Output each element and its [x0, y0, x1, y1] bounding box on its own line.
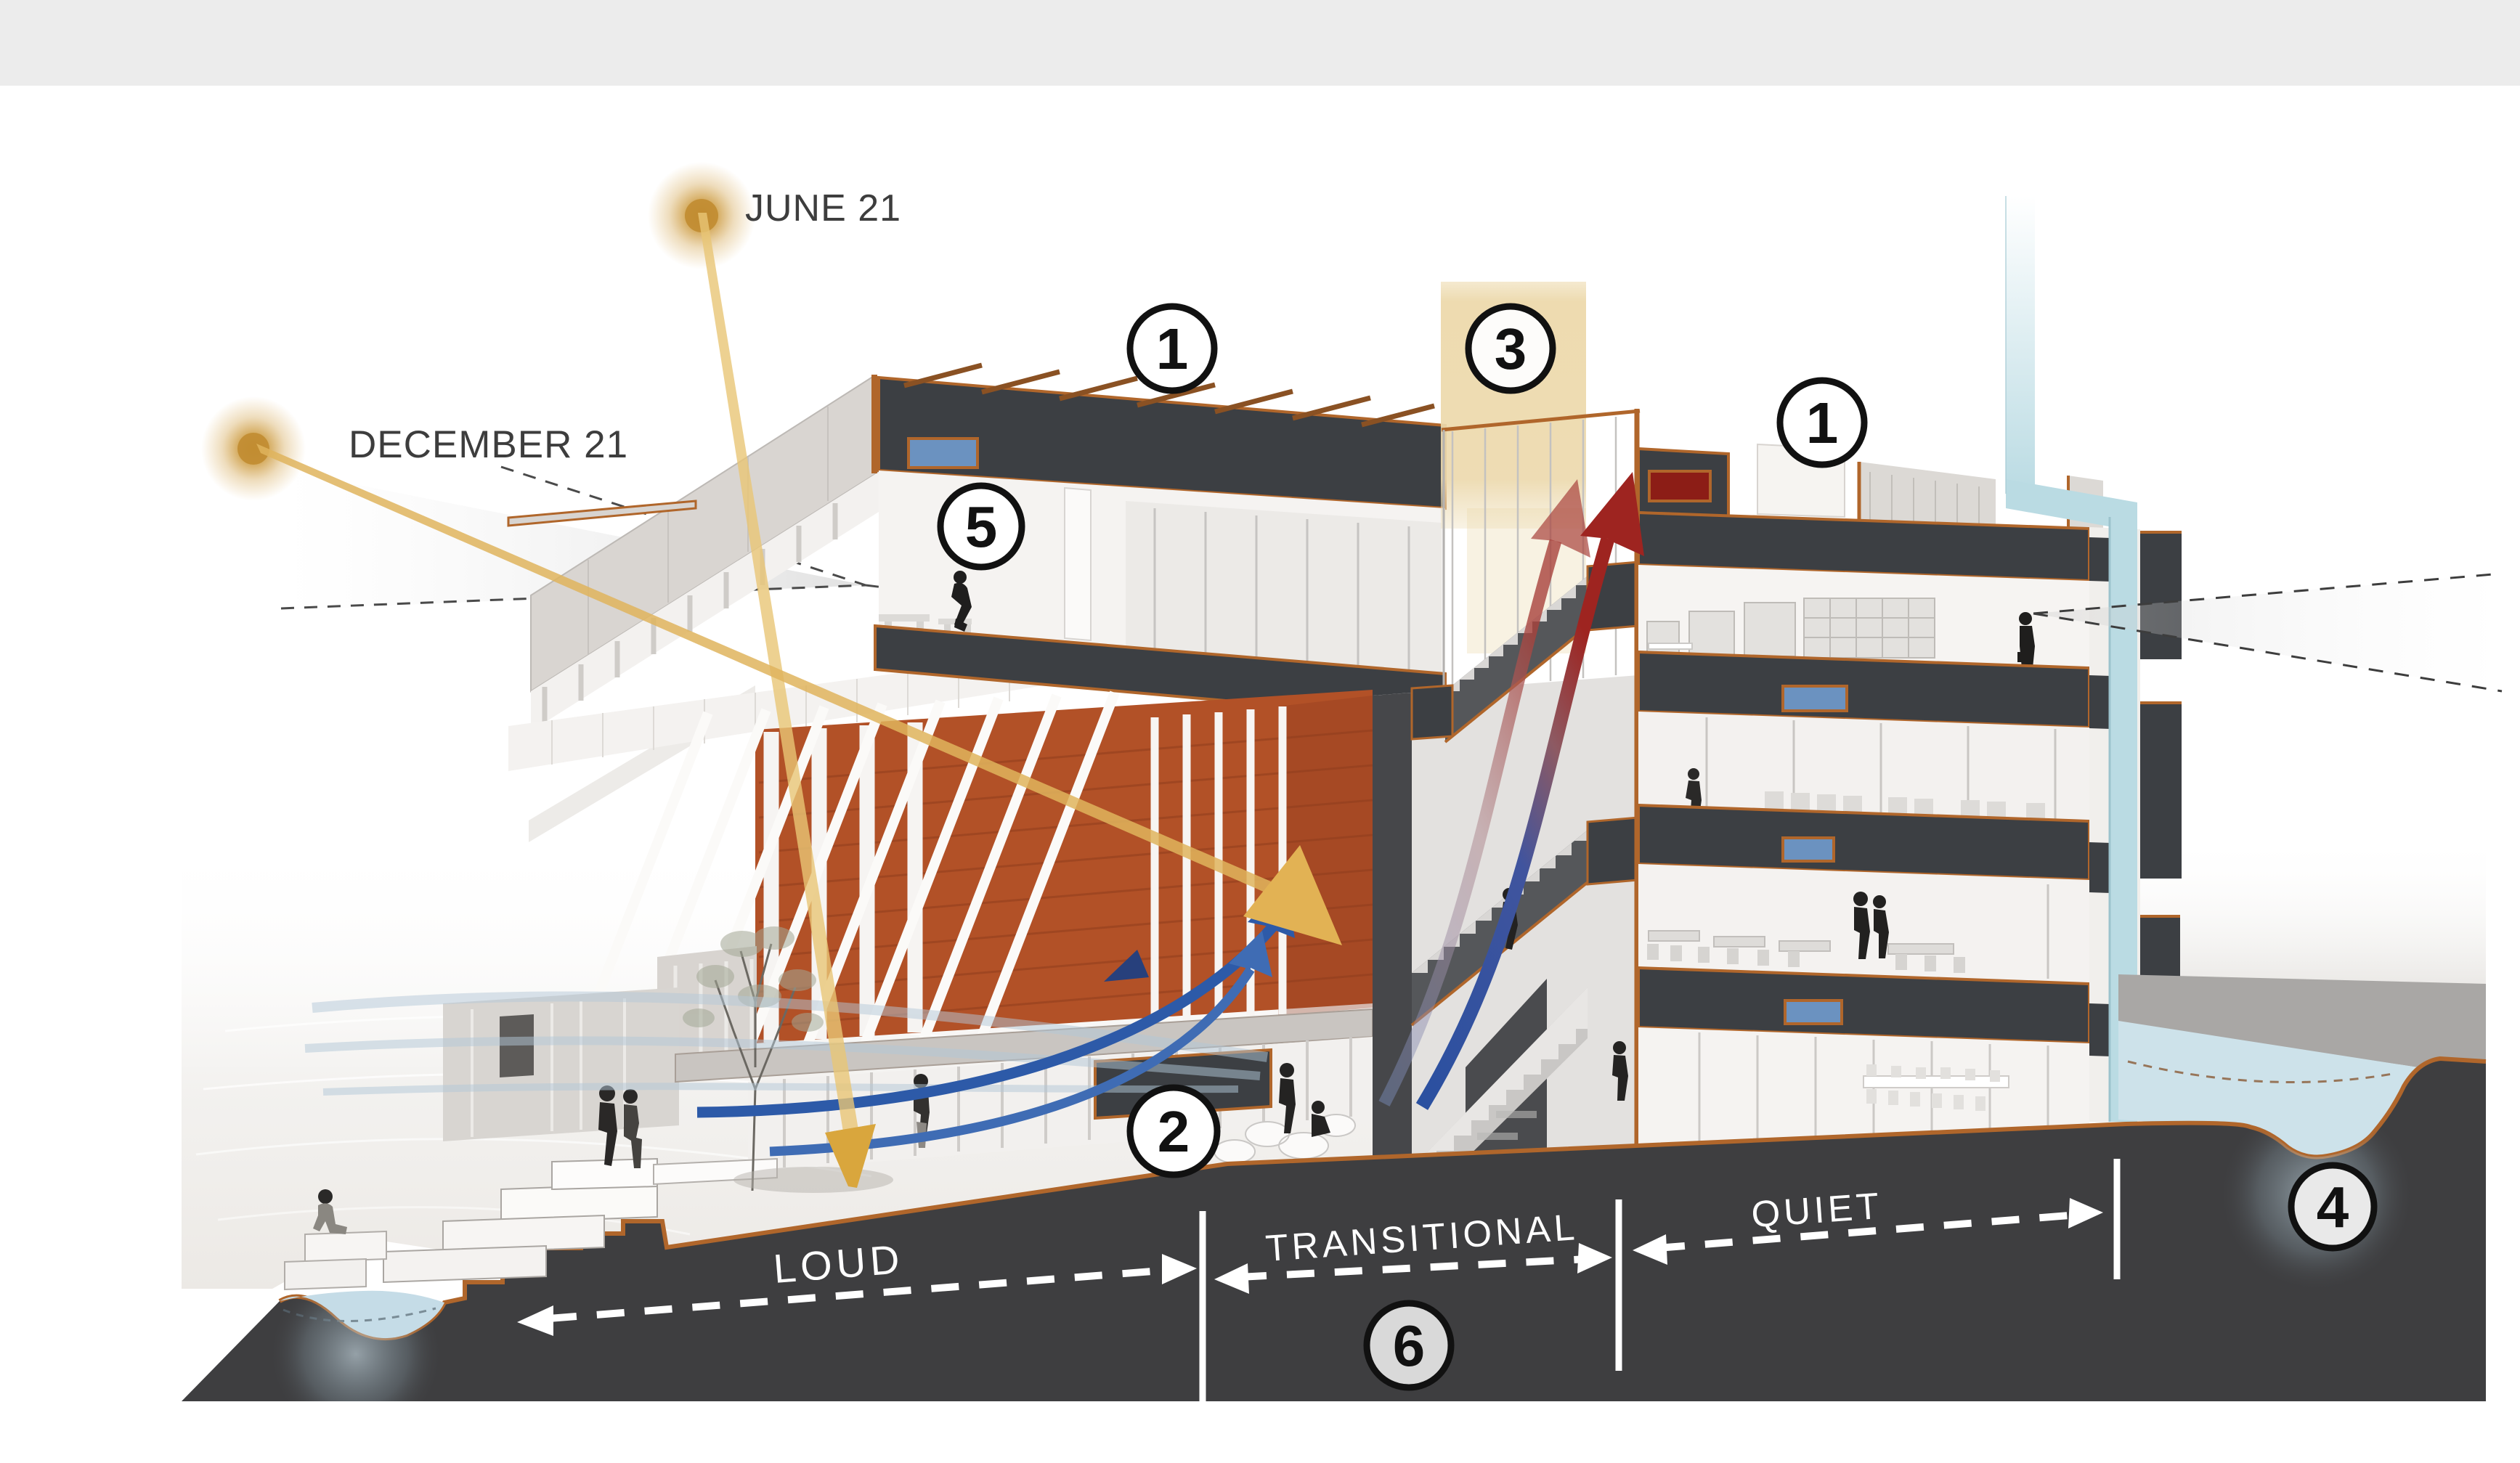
svg-text:4: 4 [2317, 1175, 2349, 1239]
svg-text:1: 1 [1156, 317, 1189, 381]
svg-text:5: 5 [965, 494, 998, 559]
svg-text:2: 2 [1158, 1099, 1190, 1164]
svg-text:DECEMBER 21: DECEMBER 21 [349, 423, 628, 466]
svg-text:6: 6 [1393, 1313, 1426, 1378]
svg-text:3: 3 [1495, 317, 1527, 381]
svg-text:1: 1 [1806, 391, 1839, 455]
svg-text:JUNE 21: JUNE 21 [745, 187, 901, 229]
